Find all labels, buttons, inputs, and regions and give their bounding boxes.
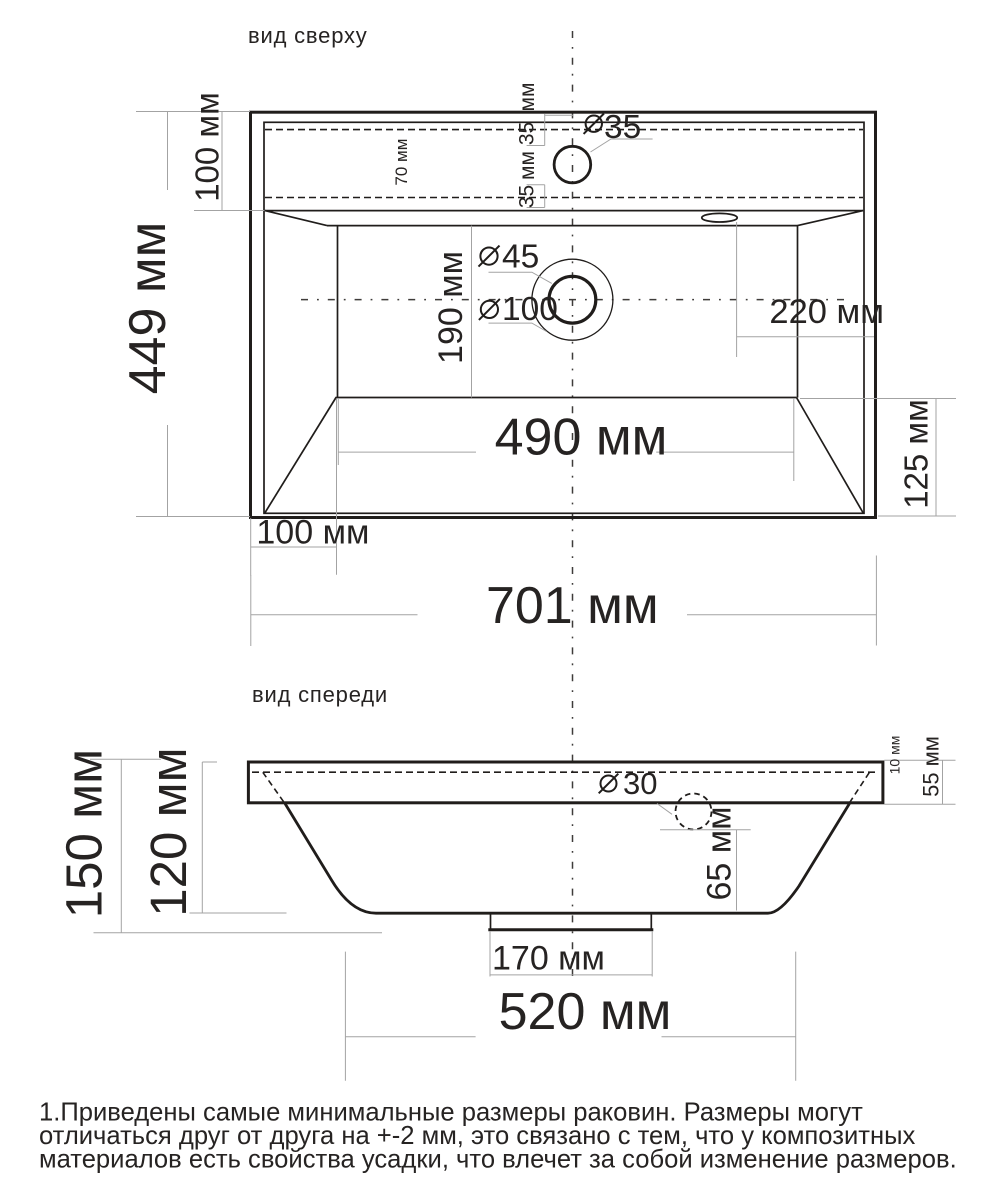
- svg-text:55 мм: 55 мм: [919, 736, 944, 797]
- svg-text:100 мм: 100 мм: [189, 92, 226, 202]
- svg-text:701 мм: 701 мм: [486, 577, 659, 635]
- svg-text:449 мм: 449 мм: [119, 222, 177, 395]
- svg-text:10 мм: 10 мм: [887, 736, 903, 775]
- svg-text:70 мм: 70 мм: [392, 139, 411, 186]
- svg-text:170 мм: 170 мм: [492, 940, 605, 978]
- svg-text:материалов есть свойства усадк: материалов есть свойства усадки, что вле…: [39, 1146, 957, 1174]
- svg-text:220 мм: 220 мм: [769, 293, 884, 331]
- svg-text:вид сверху: вид сверху: [248, 23, 368, 48]
- svg-text:65 мм: 65 мм: [701, 806, 739, 900]
- svg-text:100: 100: [502, 291, 558, 328]
- svg-text:35: 35: [516, 185, 539, 208]
- svg-text:35: 35: [516, 122, 539, 145]
- svg-text:мм: мм: [516, 151, 539, 180]
- svg-text:490 мм: 490 мм: [495, 409, 668, 467]
- svg-text:100 мм: 100 мм: [256, 513, 369, 551]
- svg-text:190 мм: 190 мм: [432, 251, 470, 364]
- svg-text:30: 30: [623, 766, 657, 801]
- svg-text:150 мм: 150 мм: [56, 749, 113, 918]
- svg-text:520 мм: 520 мм: [499, 983, 672, 1041]
- svg-text:45: 45: [502, 239, 539, 276]
- svg-text:вид спереди: вид спереди: [252, 682, 388, 707]
- svg-text:120 мм: 120 мм: [140, 747, 197, 916]
- svg-text:125 мм: 125 мм: [898, 399, 935, 509]
- svg-text:мм: мм: [516, 83, 539, 112]
